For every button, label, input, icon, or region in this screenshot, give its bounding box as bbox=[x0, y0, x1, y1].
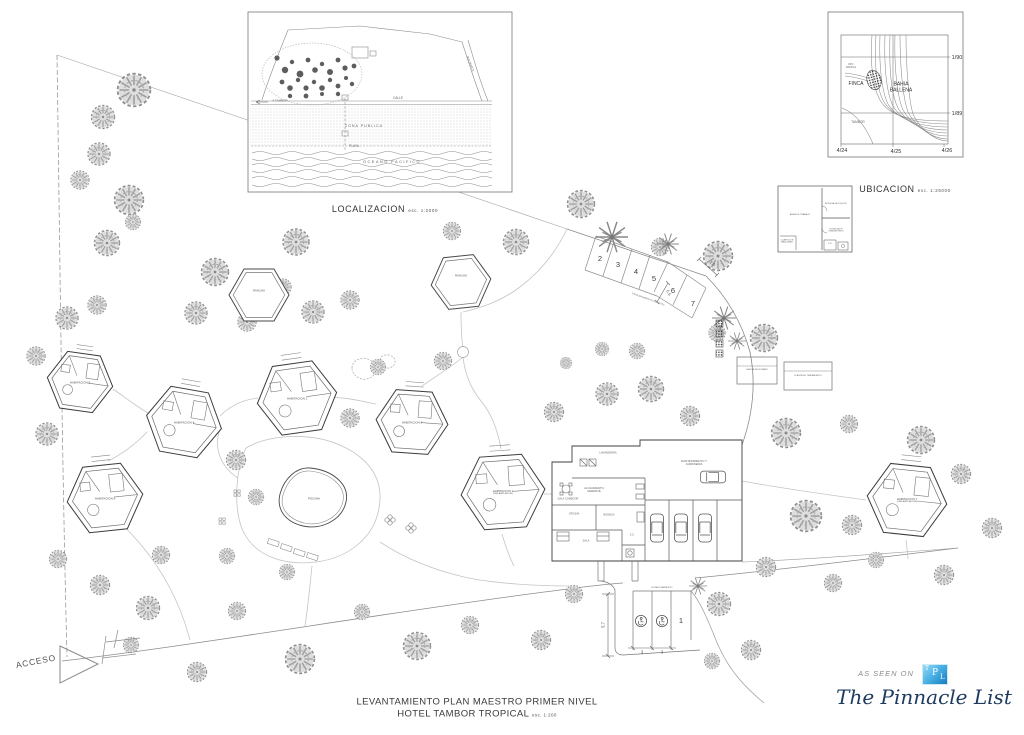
rancho-1-label: RANCHO bbox=[253, 289, 265, 292]
garden-features bbox=[352, 347, 469, 380]
bottom-parking-label: ESTACIONAMIENTO bbox=[652, 587, 673, 589]
site-plan-linework bbox=[0, 0, 1024, 735]
habitacion-1-sub: (VER AMPLIACION) bbox=[493, 493, 514, 495]
ubicacion-scale-text: esc. 1:25000 bbox=[918, 188, 951, 193]
localizacion-scale-text: esc. 1:2000 bbox=[408, 208, 438, 213]
stall-5-label: 5 bbox=[652, 275, 656, 283]
as-seen-on-label: AS SEEN ON bbox=[858, 670, 914, 678]
ubicacion-tambor-label: TAMBOR bbox=[851, 121, 864, 125]
sheet-title-line2: HOTEL TAMBOR TROPICAL esc. 1:200 bbox=[397, 710, 557, 721]
stall-7-label: 7 bbox=[691, 300, 695, 308]
sala-label: SALA bbox=[583, 541, 590, 544]
localizacion-calle-label: CALLE bbox=[393, 97, 403, 101]
detail-room3-label: BODEGA DE SUMINISTROS bbox=[823, 229, 849, 234]
sheet-title-line1: LEVANTAMIENTO PLAN MAESTRO PRIMER NIVEL bbox=[356, 698, 597, 709]
habitacion-7-label: HABITACION 7 (VER AMPLIACION) bbox=[897, 498, 918, 504]
drawing-sheet: LOCALIZACION esc. 1:2000 UBICACION esc. … bbox=[0, 0, 1024, 735]
sheet-title-line2-text: HOTEL TAMBOR TROPICAL bbox=[397, 709, 529, 720]
ubicacion-row2-label: 1/89 bbox=[952, 111, 963, 117]
ubicacion-rio-label: RIO PANICA bbox=[846, 63, 856, 69]
ubicacion-col3-label: 4/26 bbox=[942, 148, 953, 154]
ubicacion-title: UBICACION esc. 1:25000 bbox=[859, 184, 951, 194]
lavanderia-label: LAVANDERIA bbox=[599, 451, 616, 454]
pinnacle-list-logo-icon[interactable]: T P L bbox=[922, 664, 948, 685]
localizacion-playa-label: PLAYA bbox=[349, 145, 359, 149]
sheet-title-scale: esc. 1:200 bbox=[532, 713, 557, 718]
logo-letter-t: T bbox=[925, 666, 929, 672]
detail-room4-label: CUARTO DE MAQUINAS bbox=[779, 240, 795, 245]
ubicacion-row1-label: 1/90 bbox=[952, 55, 963, 61]
ubicacion-col2-label: 4/25 bbox=[891, 149, 902, 155]
piscina-label: PISCINA bbox=[308, 497, 320, 500]
rancho-2-label: RANCHO bbox=[455, 274, 467, 277]
ss-label: S.S. bbox=[630, 535, 635, 538]
alojamiento-label: ALOJAMIENTO GERENTE bbox=[584, 487, 604, 493]
trees-layer bbox=[27, 74, 1002, 682]
rio-line2: PANICA bbox=[846, 66, 856, 69]
ubicacion-finca-label: FINCA bbox=[849, 82, 864, 88]
mantenimiento-line2: JARDINERIA bbox=[681, 463, 707, 466]
habitacion-5-label: HABITACION 5 bbox=[70, 381, 91, 384]
sala-comedor-label: SALA COMEDOR bbox=[558, 499, 579, 502]
logo-letter-p: P bbox=[932, 669, 938, 678]
localizacion-a-tambor-label: A TAMBOR bbox=[272, 99, 287, 102]
utility-box1-label: CASETA DE BOMBEO bbox=[746, 369, 768, 371]
localizacion-title-text: LOCALIZACION bbox=[332, 204, 405, 214]
mantenimiento-label: MANTENIMIENTO Y JARDINERIA bbox=[681, 460, 707, 466]
alojamiento-line2: GERENTE bbox=[584, 490, 604, 493]
habitacion-3-label: HABITACION 3 bbox=[402, 421, 423, 424]
oficina-label: OFICINA bbox=[569, 514, 580, 517]
detail-room1-label: AREA DE TRABAJO bbox=[790, 214, 810, 216]
habitacion-6-label: HABITACION 6 bbox=[95, 497, 116, 500]
habitacion-4-label: HABITACION 4 bbox=[174, 421, 195, 424]
pinnacle-list-wordmark[interactable]: The Pinnacle List bbox=[836, 686, 1012, 708]
logo-letter-l: L bbox=[940, 674, 945, 681]
habitacion-2-label: HABITACION 2 bbox=[287, 397, 308, 400]
detail-room2-label: BODEGA DE EQUIPO bbox=[825, 203, 847, 205]
bodega-label: BODEGA bbox=[603, 515, 614, 518]
ubicacion-title-text: UBICACION bbox=[859, 184, 914, 194]
detail-room5-label: S.S. bbox=[828, 243, 832, 245]
bottom-stall-1-label: 1 bbox=[679, 617, 683, 625]
dim-3b-label: 3 bbox=[661, 651, 663, 656]
stall-2-label: 2 bbox=[598, 255, 602, 263]
bahia-line2: BALLENA bbox=[890, 88, 913, 94]
dim-5-7-label: 5,7 bbox=[602, 622, 607, 628]
habitacion-7-sub: (VER AMPLIACION) bbox=[897, 501, 918, 503]
localizacion-zona-label: ZONA PUBLICA bbox=[345, 124, 383, 128]
services-building bbox=[552, 440, 742, 581]
dim-3a-label: 3 bbox=[641, 651, 643, 656]
stall-4-label: 4 bbox=[634, 268, 638, 276]
ubicacion-bahia-label: BAHIA BALLENA bbox=[890, 82, 913, 93]
stall-3-label: 3 bbox=[616, 261, 620, 269]
pool bbox=[267, 468, 416, 561]
utility-box2-label: PLANTA DE TRATAMIENTO bbox=[794, 375, 822, 377]
ubicacion-col1-label: 4/24 bbox=[837, 148, 848, 154]
localizacion-title: LOCALIZACION esc. 1:2000 bbox=[332, 204, 438, 214]
localizacion-oceano-label: OCEANO PACIFICO bbox=[363, 160, 421, 164]
habitacion-1-label: HABITACION 1 (VER AMPLIACION) bbox=[493, 490, 514, 496]
bottom-parking bbox=[601, 581, 700, 658]
